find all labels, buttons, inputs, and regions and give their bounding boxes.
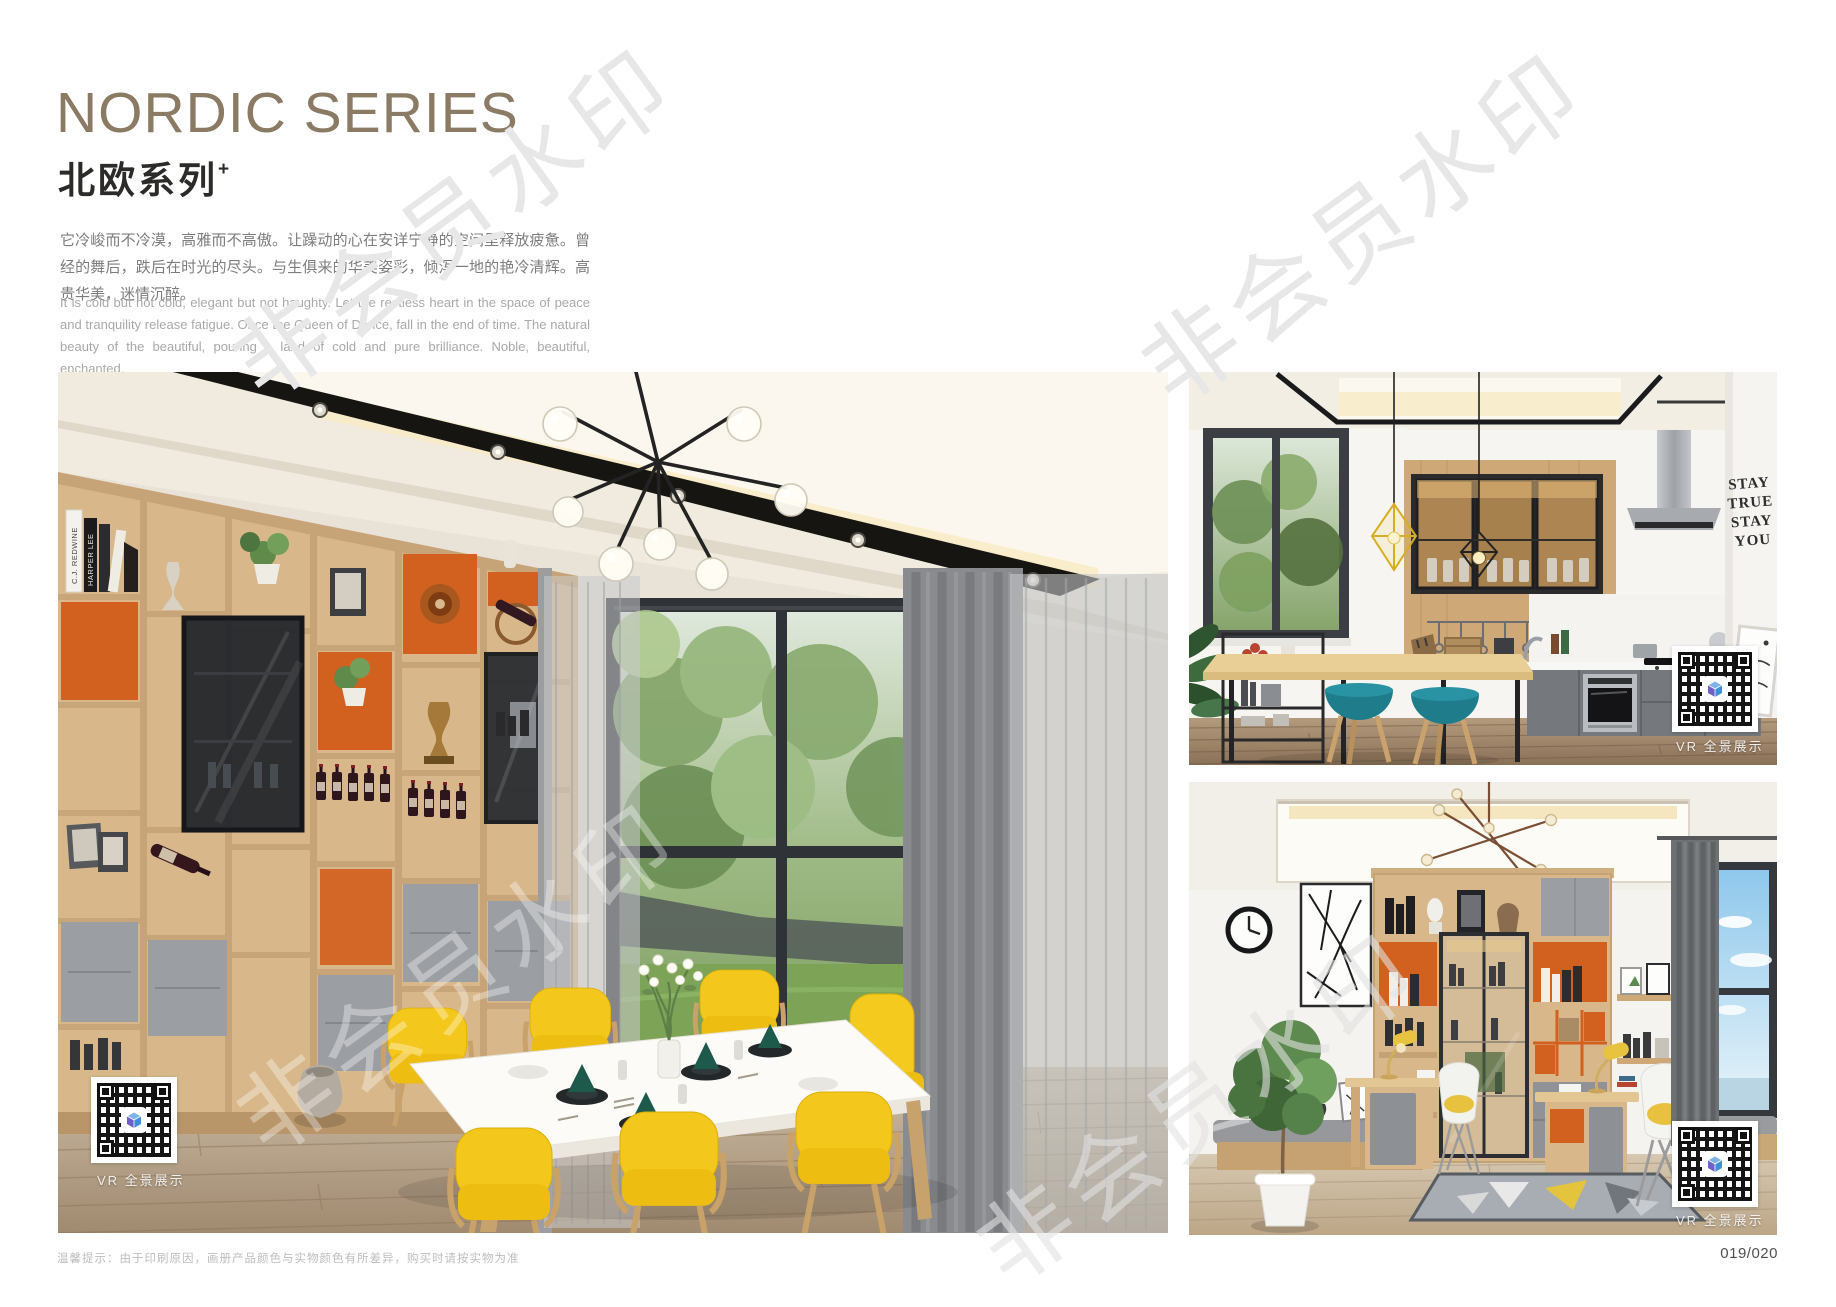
wall-clock — [1228, 909, 1270, 951]
svg-text:YOU: YOU — [1734, 532, 1771, 550]
subtitle-text: 北欧系列 — [58, 160, 218, 201]
vr-label: VR 全景展示 — [1676, 736, 1764, 755]
book-spine-text: HARPER LEE — [86, 533, 95, 586]
svg-text:STAY: STAY — [1728, 475, 1771, 494]
qr-finder-icon — [1735, 1127, 1752, 1144]
cubby-grid — [1533, 1010, 1607, 1076]
qr-finder-icon — [1678, 1184, 1695, 1201]
subtitle-plus: + — [218, 159, 229, 180]
vr-qr-code — [1672, 646, 1758, 732]
vr-qr-code — [91, 1077, 177, 1163]
qr-finder-icon — [154, 1083, 171, 1100]
watermark-text: 非会员水印 — [1110, 15, 1611, 431]
page-title: NORDIC SERIES — [56, 84, 519, 144]
page-number: 019/020 — [1720, 1245, 1778, 1262]
svg-text:STAY: STAY — [1730, 513, 1773, 532]
qr-finder-icon — [97, 1140, 114, 1157]
vr-label: VR 全景展示 — [1676, 1210, 1764, 1229]
book-spine-text: C.J. REDWINE — [70, 527, 79, 584]
svg-text:TRUE: TRUE — [1727, 493, 1774, 512]
page-subtitle: 北欧系列+ — [58, 150, 229, 204]
catalog-page: NORDIC SERIES 北欧系列+ 它冷峻而不冷漠，高雅而不高傲。让躁动的心… — [0, 0, 1836, 1307]
qr-finder-icon — [1735, 652, 1752, 669]
abstract-art-frame — [1301, 884, 1371, 1006]
qr-finder-icon — [1678, 652, 1695, 669]
qr-finder-icon — [1678, 1127, 1695, 1144]
rug — [1411, 1174, 1703, 1220]
oven — [1583, 674, 1637, 732]
vr-qr-code — [1672, 1121, 1758, 1207]
qr-finder-icon — [97, 1083, 114, 1100]
shelving-unit: C.J. REDWINE HARPER LEE — [58, 472, 578, 1134]
decor-fan — [420, 584, 460, 624]
qr-cube-logo-icon — [1702, 1151, 1728, 1177]
kitchen-window — [1199, 428, 1353, 646]
kitchen-ceiling — [1189, 372, 1777, 430]
description-english: It is cold but not cold, elegant but not… — [60, 292, 590, 380]
footer-disclaimer: 温馨提示：由于印刷原因，画册产品颜色与实物颜色有所差异，购买时请按实物为准 — [57, 1250, 520, 1266]
upper-cabinets — [1411, 474, 1603, 594]
vr-label: VR 全景展示 — [97, 1170, 185, 1189]
glass-cabinet — [184, 618, 302, 830]
photo-dining-room: C.J. REDWINE HARPER LEE — [58, 372, 1168, 1233]
qr-cube-logo-icon — [121, 1107, 147, 1133]
qr-cube-logo-icon — [1702, 676, 1728, 702]
qr-finder-icon — [1678, 709, 1695, 726]
